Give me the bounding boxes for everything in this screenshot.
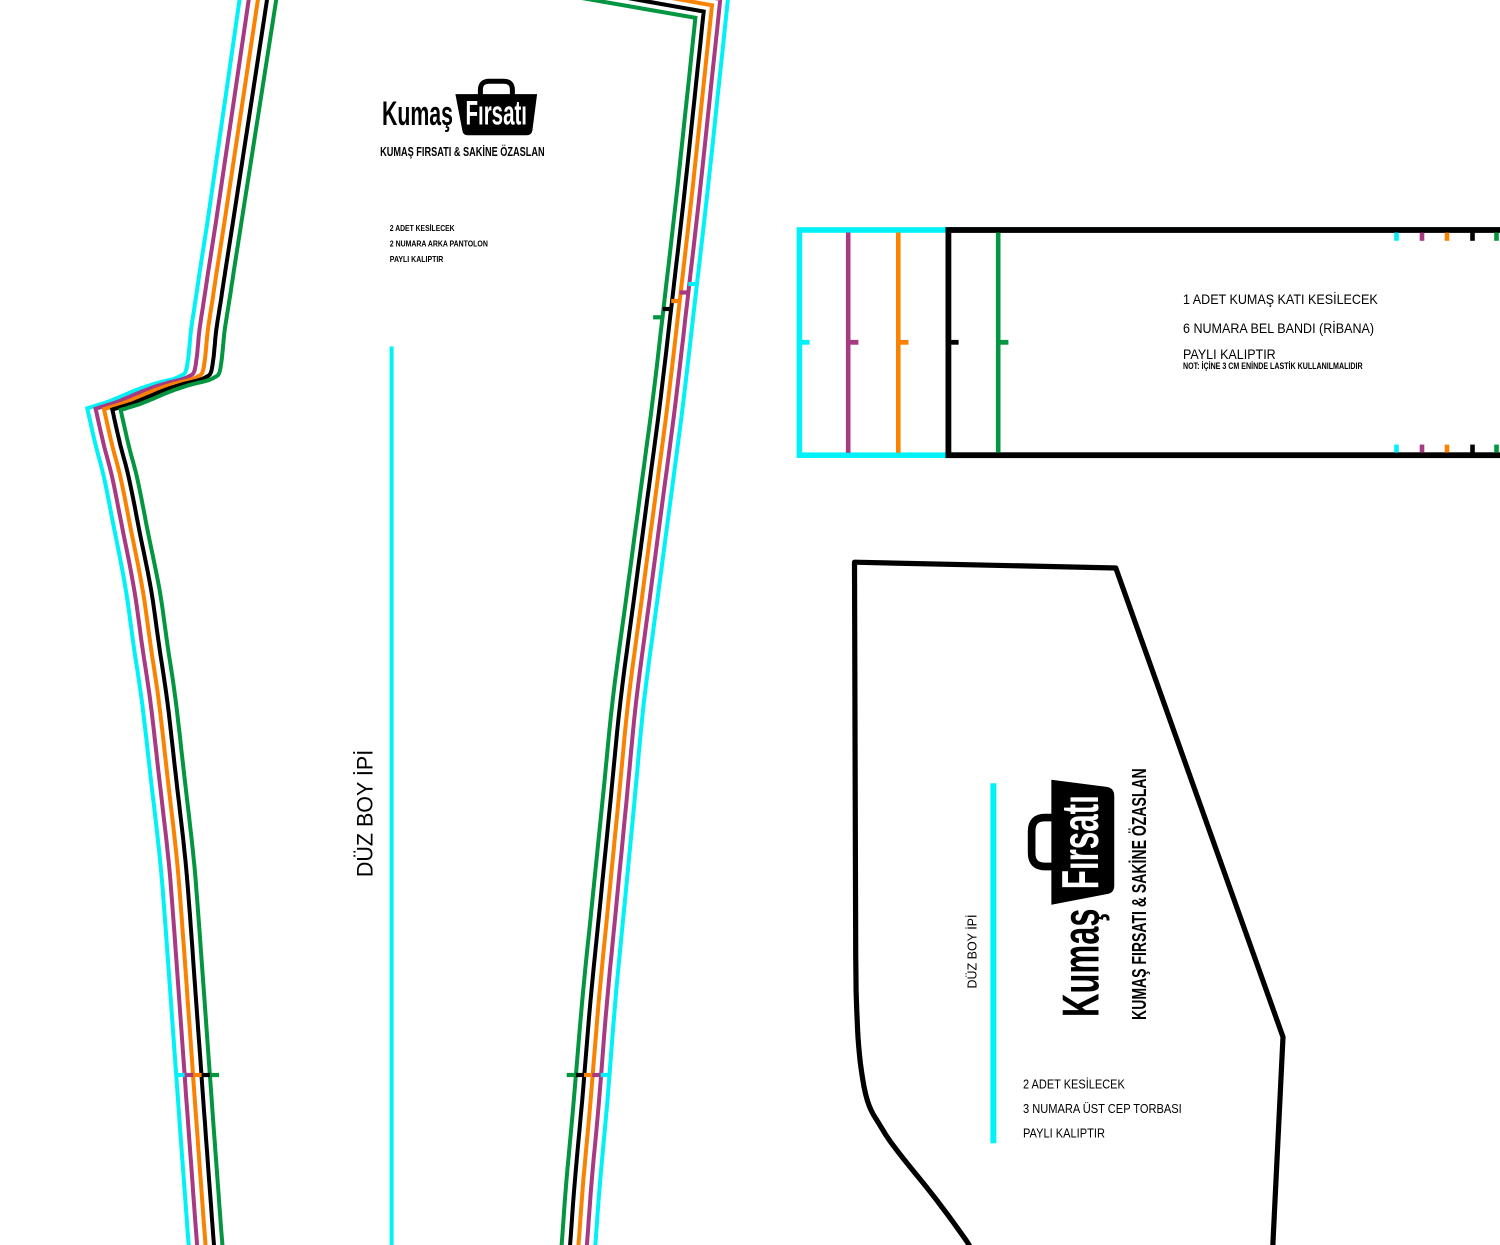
svg-text:Kumaş: Kumaş: [382, 95, 453, 133]
svg-text:NOT: İÇİNE 3 CM ENİNDE LASTİK: NOT: İÇİNE 3 CM ENİNDE LASTİK KULLANILMA…: [1183, 360, 1363, 371]
svg-text:PAYLI KALIPTIR: PAYLI KALIPTIR: [1023, 1126, 1105, 1141]
svg-text:2 ADET KESİLECEK: 2 ADET KESİLECEK: [1023, 1077, 1125, 1092]
svg-text:DÜZ BOY İPİ: DÜZ BOY İPİ: [964, 915, 979, 989]
svg-text:2 ADET KESİLECEK: 2 ADET KESİLECEK: [390, 223, 455, 233]
svg-text:2 NUMARA ARKA PANTOLON: 2 NUMARA ARKA PANTOLON: [390, 239, 488, 249]
svg-text:Fırsatı: Fırsatı: [466, 94, 528, 132]
svg-text:DÜZ BOY İPİ: DÜZ BOY İPİ: [352, 750, 378, 877]
svg-text:6 NUMARA BEL BANDI (RİBANA): 6 NUMARA BEL BANDI (RİBANA): [1183, 320, 1374, 336]
svg-text:3 NUMARA ÜST CEP TORBASI: 3 NUMARA ÜST CEP TORBASI: [1023, 1101, 1182, 1116]
svg-text:PAYLI KALIPTIR: PAYLI KALIPTIR: [390, 255, 444, 265]
svg-text:1 ADET KUMAŞ KATI KESİLECEK: 1 ADET KUMAŞ KATI KESİLECEK: [1183, 291, 1378, 307]
svg-text:KUMAŞ FIRSATI & SAKİNE ÖZASLAN: KUMAŞ FIRSATI & SAKİNE ÖZASLAN: [380, 144, 545, 159]
svg-text:PAYLI KALIPTIR: PAYLI KALIPTIR: [1183, 347, 1276, 363]
